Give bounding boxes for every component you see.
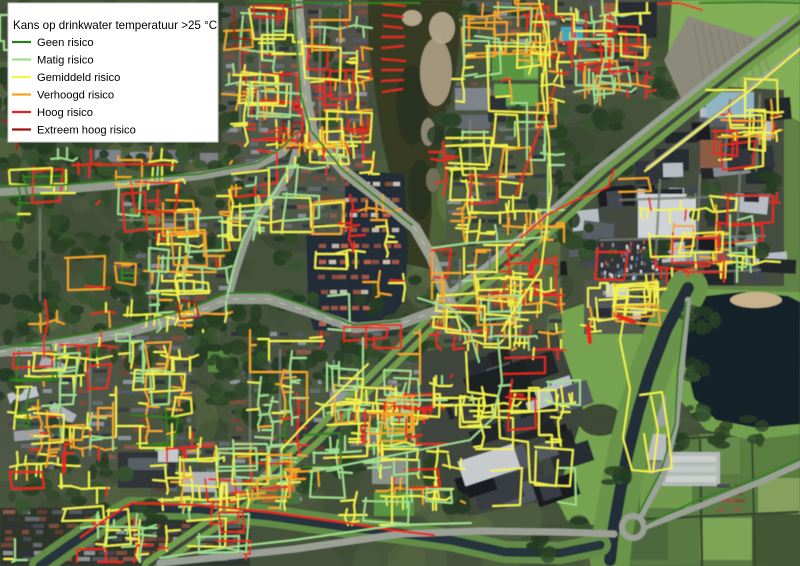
svg-text:Hoog risico: Hoog risico <box>37 107 93 119</box>
svg-text:Kans op drinkwater temperatuur: Kans op drinkwater temperatuur >25 °C <box>13 19 217 32</box>
svg-text:Gemiddeld risico: Gemiddeld risico <box>37 72 120 84</box>
svg-text:Matig risico: Matig risico <box>37 55 94 67</box>
svg-text:Geen risico: Geen risico <box>37 37 94 49</box>
svg-text:Extreem hoog risico: Extreem hoog risico <box>37 125 136 137</box>
svg-text:Verhoogd risico: Verhoogd risico <box>37 90 114 102</box>
